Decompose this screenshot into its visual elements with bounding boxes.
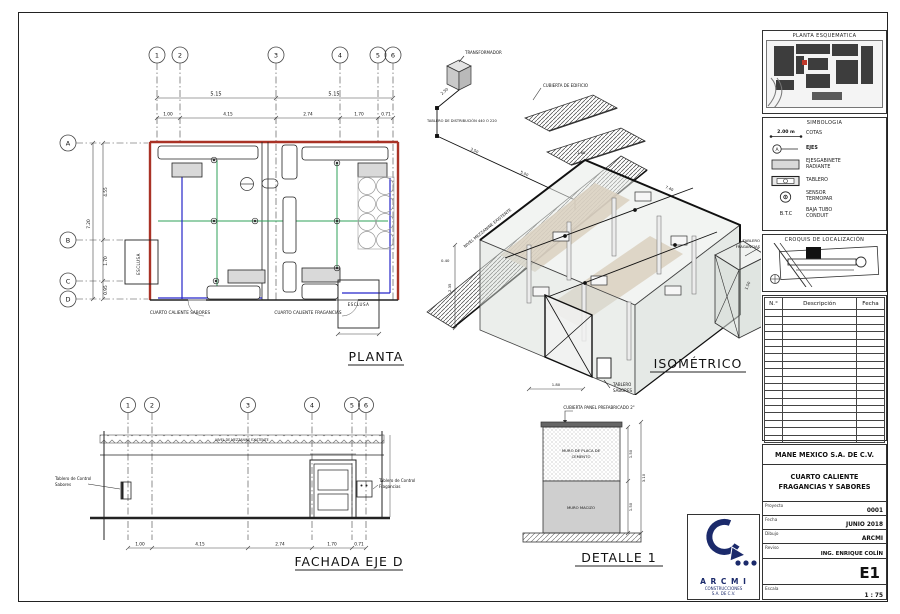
legend-label: COTAS bbox=[806, 131, 822, 137]
company-name: MANE MEXICO S.A. DE C.V. bbox=[763, 445, 886, 464]
view-title-isometrico: ISOMÉTRICO bbox=[654, 356, 743, 371]
tablero-control-sabores-label: Tablero de Control bbox=[54, 476, 91, 481]
tablero-fragancias-label: TABLERO bbox=[742, 238, 760, 243]
planta-drawing: 1 2 3 4 5 6 5.15 5.15 1.00 4.15 2.74 1.7… bbox=[40, 42, 425, 382]
axis-label: 3 bbox=[246, 402, 250, 410]
sheet-number: E1 bbox=[763, 558, 886, 584]
room-label: CUARTO CALIENTE FRAGANCIAS bbox=[274, 310, 342, 315]
axis-label: 2 bbox=[178, 52, 182, 60]
revision-empty-row bbox=[765, 391, 885, 398]
revision-empty-row bbox=[765, 428, 885, 435]
legend-label: EJES bbox=[806, 146, 818, 152]
radiant-cabinet-icon bbox=[768, 158, 804, 171]
legend-item-gabinete: EJESGABINETERADIANTE bbox=[763, 156, 886, 173]
revision-empty-row bbox=[765, 398, 885, 405]
dim-label: 7.40 bbox=[665, 184, 675, 192]
legend-item-sensor: SENSORTERMOPAR bbox=[763, 188, 886, 205]
room-label: CUARTO CALIENTE SABORES bbox=[150, 310, 211, 315]
planta-dimensions-left bbox=[91, 141, 105, 301]
field-reviso: Reviso ING. ENRIQUE COLÍN bbox=[763, 543, 886, 558]
revision-table: N.° Descripción Fecha bbox=[764, 297, 885, 443]
revision-col-fecha: Fecha bbox=[857, 298, 885, 310]
btc-symbol: B.T.C bbox=[780, 211, 793, 217]
revision-empty-row bbox=[765, 354, 885, 361]
legend-label: TABLERO bbox=[806, 178, 828, 184]
dim-label: 1.00 bbox=[163, 112, 173, 118]
revision-col-num: N.° bbox=[765, 298, 783, 310]
logo-name: A R C M I bbox=[688, 577, 759, 586]
dim-label: 2.74 bbox=[275, 542, 285, 548]
dim-label: 1.80 bbox=[552, 382, 561, 387]
revision-empty-row bbox=[765, 413, 885, 420]
revision-empty-row bbox=[765, 346, 885, 353]
thermocouple-sensor-icon bbox=[768, 190, 804, 204]
legend-panel: SIMBOLOGIA 2.00 m COTAS A EJES EJESGABIN… bbox=[762, 117, 887, 231]
roof-level-label: NIVEL DE MEZZANINE EXISTENTE bbox=[215, 438, 268, 442]
axis-label: 3 bbox=[274, 52, 278, 60]
detalle-section bbox=[523, 411, 641, 542]
dim-label: 4.15 bbox=[195, 542, 205, 548]
dim-label: 1.70 bbox=[327, 542, 337, 548]
dim-label: 1.60 bbox=[577, 150, 586, 155]
transformer bbox=[447, 56, 471, 90]
muro-macizo-label: MURO MACIZO bbox=[567, 505, 595, 510]
dim-label: 1.50 bbox=[628, 449, 633, 458]
title-block: MANE MEXICO S.A. DE C.V. CUARTO CALIENTE… bbox=[762, 444, 887, 600]
axis-symbol-icon: A bbox=[768, 143, 804, 155]
room-label-esclusa: ESCLUSA bbox=[136, 253, 141, 275]
axis-label: 4 bbox=[338, 52, 342, 60]
revision-col-desc: Descripción bbox=[783, 298, 857, 310]
dim-label: 0.40 bbox=[441, 258, 450, 263]
revision-empty-row bbox=[765, 317, 885, 324]
annex-fragancias bbox=[715, 241, 761, 338]
legend-item-ejes: A EJES bbox=[763, 141, 886, 156]
revision-empty-row bbox=[765, 435, 885, 442]
axis-label: C bbox=[66, 278, 71, 286]
panel-icon bbox=[768, 175, 804, 187]
dim-label: 4.55 bbox=[103, 187, 109, 197]
tablero-control-sabores-label: Sabores bbox=[55, 482, 71, 487]
view-title-fachada: FACHADA EJE D bbox=[294, 554, 403, 569]
arcmi-logo-icon bbox=[688, 515, 759, 573]
axis-label: 6 bbox=[391, 52, 395, 60]
dim-label: 1.00 bbox=[135, 542, 145, 548]
cubierta-label: CUBIERTA DE EDIFICIO bbox=[543, 83, 588, 88]
tablero-distribucion-label: TABLERO DE DISTRIBUCIÓN 440 O 220 bbox=[426, 118, 497, 123]
fachada-building bbox=[88, 431, 390, 540]
revision-empty-row bbox=[765, 339, 885, 346]
revision-empty-row bbox=[765, 376, 885, 383]
planta-grid-axes-left bbox=[60, 135, 148, 307]
transformador-label: TRANSFORMADOR bbox=[464, 50, 502, 55]
dim-label: 0.95 bbox=[103, 285, 109, 295]
dim-label: 4.15 bbox=[223, 112, 233, 118]
legend-item-tablero: TABLERO bbox=[763, 173, 886, 188]
planta-conduits bbox=[158, 160, 390, 299]
tablero-fragancias-label: FRAGANCIAS bbox=[736, 244, 761, 249]
legend-label: EJESGABINETERADIANTE bbox=[806, 159, 841, 170]
company-logo: A R C M I CONSTRUCCIONES S.A. DE C.V. bbox=[687, 514, 760, 600]
planta-storage-circles bbox=[358, 177, 394, 249]
field-proyecto: Proyecto 0001 bbox=[763, 501, 886, 515]
revision-empty-row bbox=[765, 332, 885, 339]
axis-label: 1 bbox=[126, 402, 130, 410]
room-label-esclusa: ESCLUSA bbox=[348, 302, 370, 307]
dim-label: 1.70 bbox=[354, 112, 364, 118]
axis-label: 1 bbox=[155, 52, 159, 60]
revision-empty-row bbox=[765, 369, 885, 376]
dim-label: 3.10 bbox=[641, 473, 646, 482]
site-plan-map bbox=[766, 40, 883, 108]
legend-sample: 2.00 m bbox=[777, 129, 795, 135]
dim-label: 2.50 bbox=[439, 86, 449, 96]
field-dibujo: Dibujo ARCMI bbox=[763, 529, 886, 543]
axis-label: 4 bbox=[310, 402, 314, 410]
legend-item-cotas: 2.00 m COTAS bbox=[763, 126, 886, 141]
revision-empty-row bbox=[765, 310, 885, 317]
dim-label: 2.35 bbox=[447, 283, 452, 292]
dim-label: 2.74 bbox=[303, 112, 313, 118]
planta-tableros bbox=[172, 163, 387, 283]
location-sketch-title: CROQUIS DE LOCALIZACIÓN bbox=[763, 235, 886, 243]
legend-label: BAJA TUBOCONDUIT bbox=[806, 208, 832, 219]
axis-label: A bbox=[66, 140, 71, 148]
field-fecha: Fecha JUNIO 2018 bbox=[763, 515, 886, 529]
dim-label: 5.15 bbox=[328, 92, 339, 98]
revision-empty-row bbox=[765, 324, 885, 331]
axis-label: B bbox=[66, 237, 70, 245]
isometrico-drawing: TRANSFORMADOR 2.50 3.50 5.00 TABLERO DE … bbox=[425, 40, 761, 395]
axis-label: D bbox=[65, 296, 70, 304]
revision-empty-row bbox=[765, 383, 885, 390]
revision-empty-row bbox=[765, 406, 885, 413]
logo-line3: S.A. DE C.V. bbox=[688, 591, 759, 596]
tablero-sabores-label: TABLERO bbox=[612, 382, 631, 387]
dim-label: 5.15 bbox=[210, 92, 221, 98]
revision-empty-row bbox=[765, 361, 885, 368]
revision-table-panel: N.° Descripción Fecha bbox=[762, 295, 887, 441]
project-name: CUARTO CALIENTE FRAGANCIAS Y SABORES bbox=[763, 464, 886, 501]
dim-label: 7.20 bbox=[86, 219, 92, 229]
axis-label: 5 bbox=[350, 402, 354, 410]
dim-label: 0.71 bbox=[354, 542, 364, 548]
view-title-detalle: DETALLE 1 bbox=[581, 550, 657, 565]
site-plan-title: PLANTA ESQUEMATICA bbox=[763, 31, 886, 39]
location-sketch-map bbox=[766, 243, 883, 287]
detalle-drawing: CUBIERTA PANEL PREFABRICADO 2" MURO DE P… bbox=[495, 393, 705, 583]
muro-placa-label: CEMENTO bbox=[572, 454, 591, 459]
dimension-symbol-icon: 2.00 m bbox=[768, 128, 804, 140]
cubierta-panel-label: CUBIERTA PANEL PREFABRICADO 2" bbox=[563, 405, 634, 410]
muro-placa-label: MURO DE PLACA DE bbox=[562, 448, 601, 453]
axis-label: 2 bbox=[150, 402, 154, 410]
location-sketch-panel: CROQUIS DE LOCALIZACIÓN bbox=[762, 234, 887, 292]
field-escala: Escala 1 : 75 bbox=[763, 584, 886, 600]
tablero-control-fragancias-label: Fragancias bbox=[379, 484, 400, 489]
site-plan-panel: PLANTA ESQUEMATICA bbox=[762, 30, 887, 114]
legend-title: SIMBOLOGIA bbox=[763, 118, 886, 126]
revision-empty-row bbox=[765, 420, 885, 427]
legend-sample: A bbox=[775, 146, 779, 152]
dim-label: 1.50 bbox=[628, 502, 633, 511]
legend-label: SENSORTERMOPAR bbox=[806, 191, 832, 202]
axis-label: 6 bbox=[364, 402, 368, 410]
view-title-planta: PLANTA bbox=[348, 349, 403, 364]
dim-label: 1.70 bbox=[103, 256, 109, 266]
legend-item-btc: B.T.C BAJA TUBOCONDUIT bbox=[763, 205, 886, 222]
axis-label: 5 bbox=[376, 52, 380, 60]
dim-label: 0.71 bbox=[381, 112, 391, 118]
drawing-sheet: { "planta": { "title": "PLANTA", "axes_t… bbox=[0, 0, 900, 614]
fachada-drawing: 1 2 3 4 5 6 NIVEL DE MEZZANINE EXISTENTE… bbox=[52, 390, 422, 580]
tablero-control-fragancias-label: Tablero de Control bbox=[378, 478, 415, 483]
